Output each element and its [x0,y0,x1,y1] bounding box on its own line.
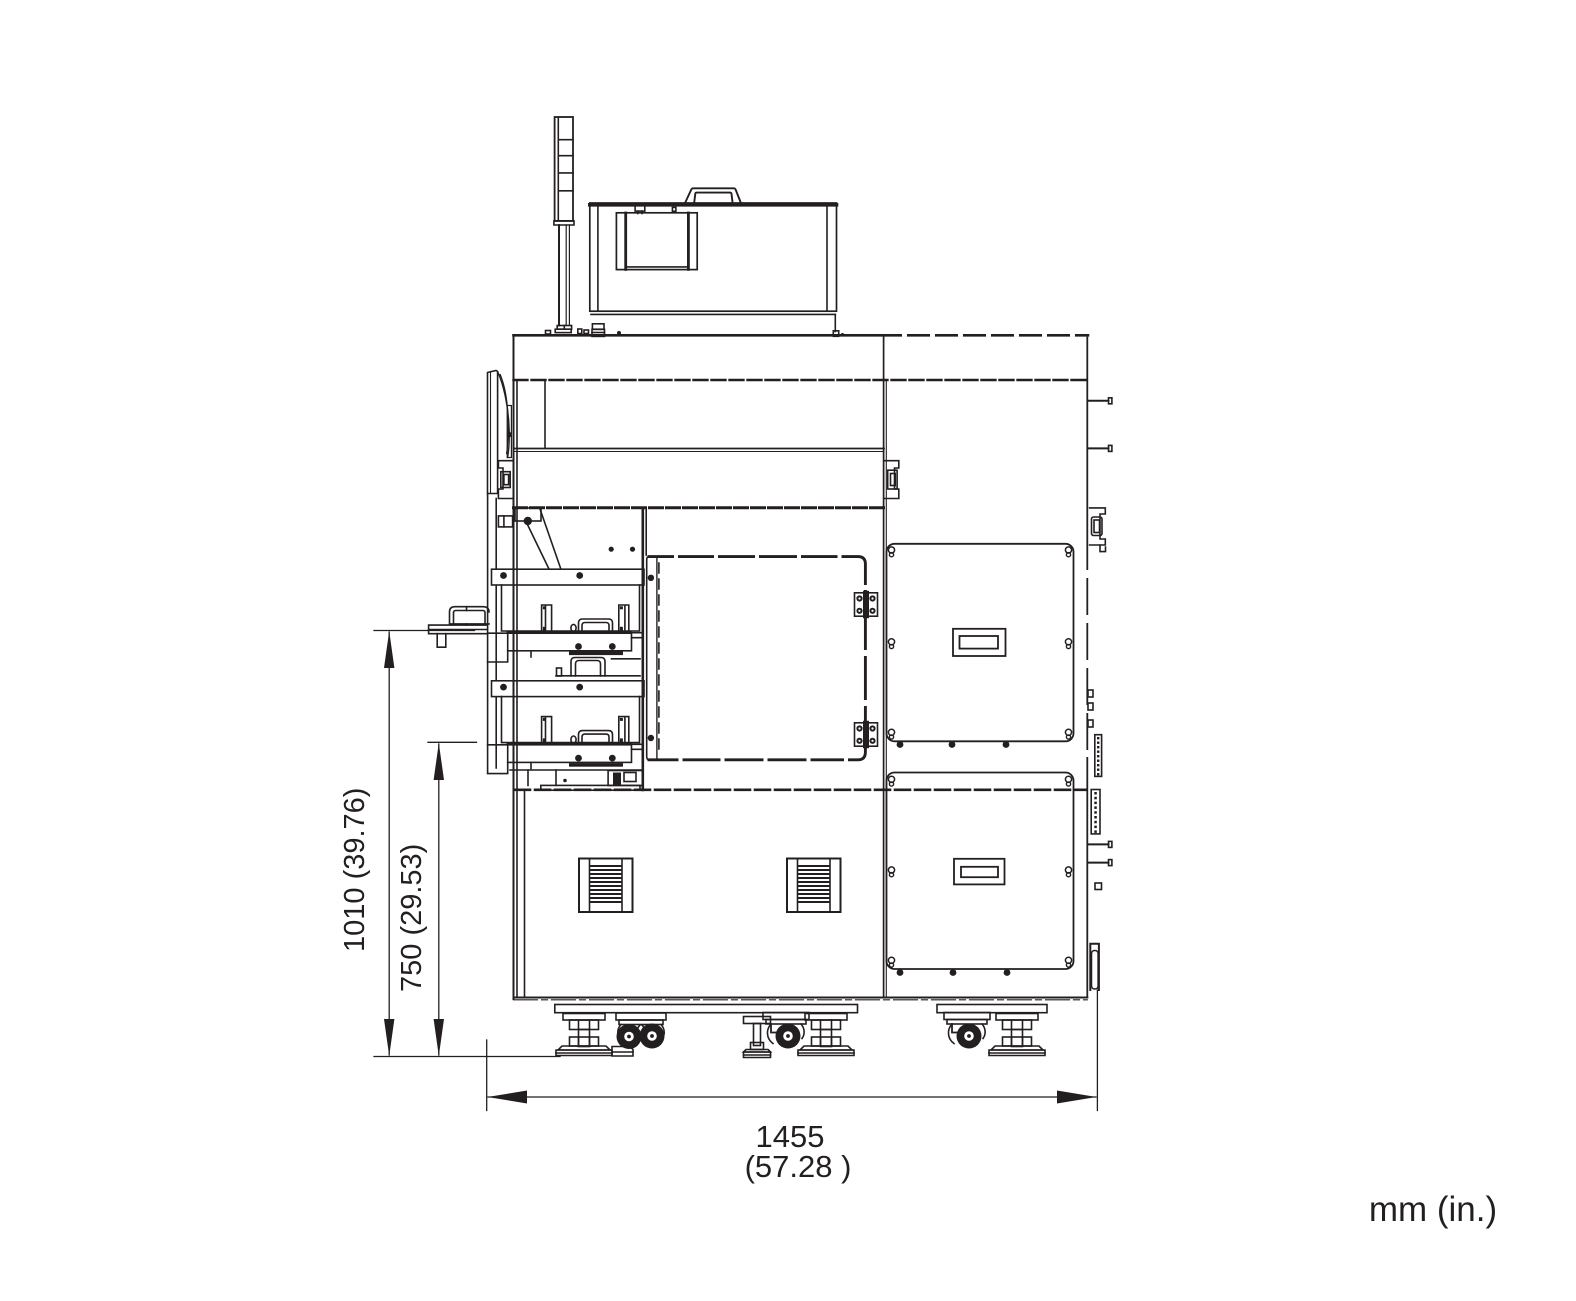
svg-text:1010 (39.76): 1010 (39.76) [339,788,371,952]
svg-text:750 (29.53): 750 (29.53) [396,844,428,992]
svg-text:(57.28 ): (57.28 ) [745,1149,852,1184]
svg-text:mm (in.): mm (in.) [1369,1190,1497,1229]
